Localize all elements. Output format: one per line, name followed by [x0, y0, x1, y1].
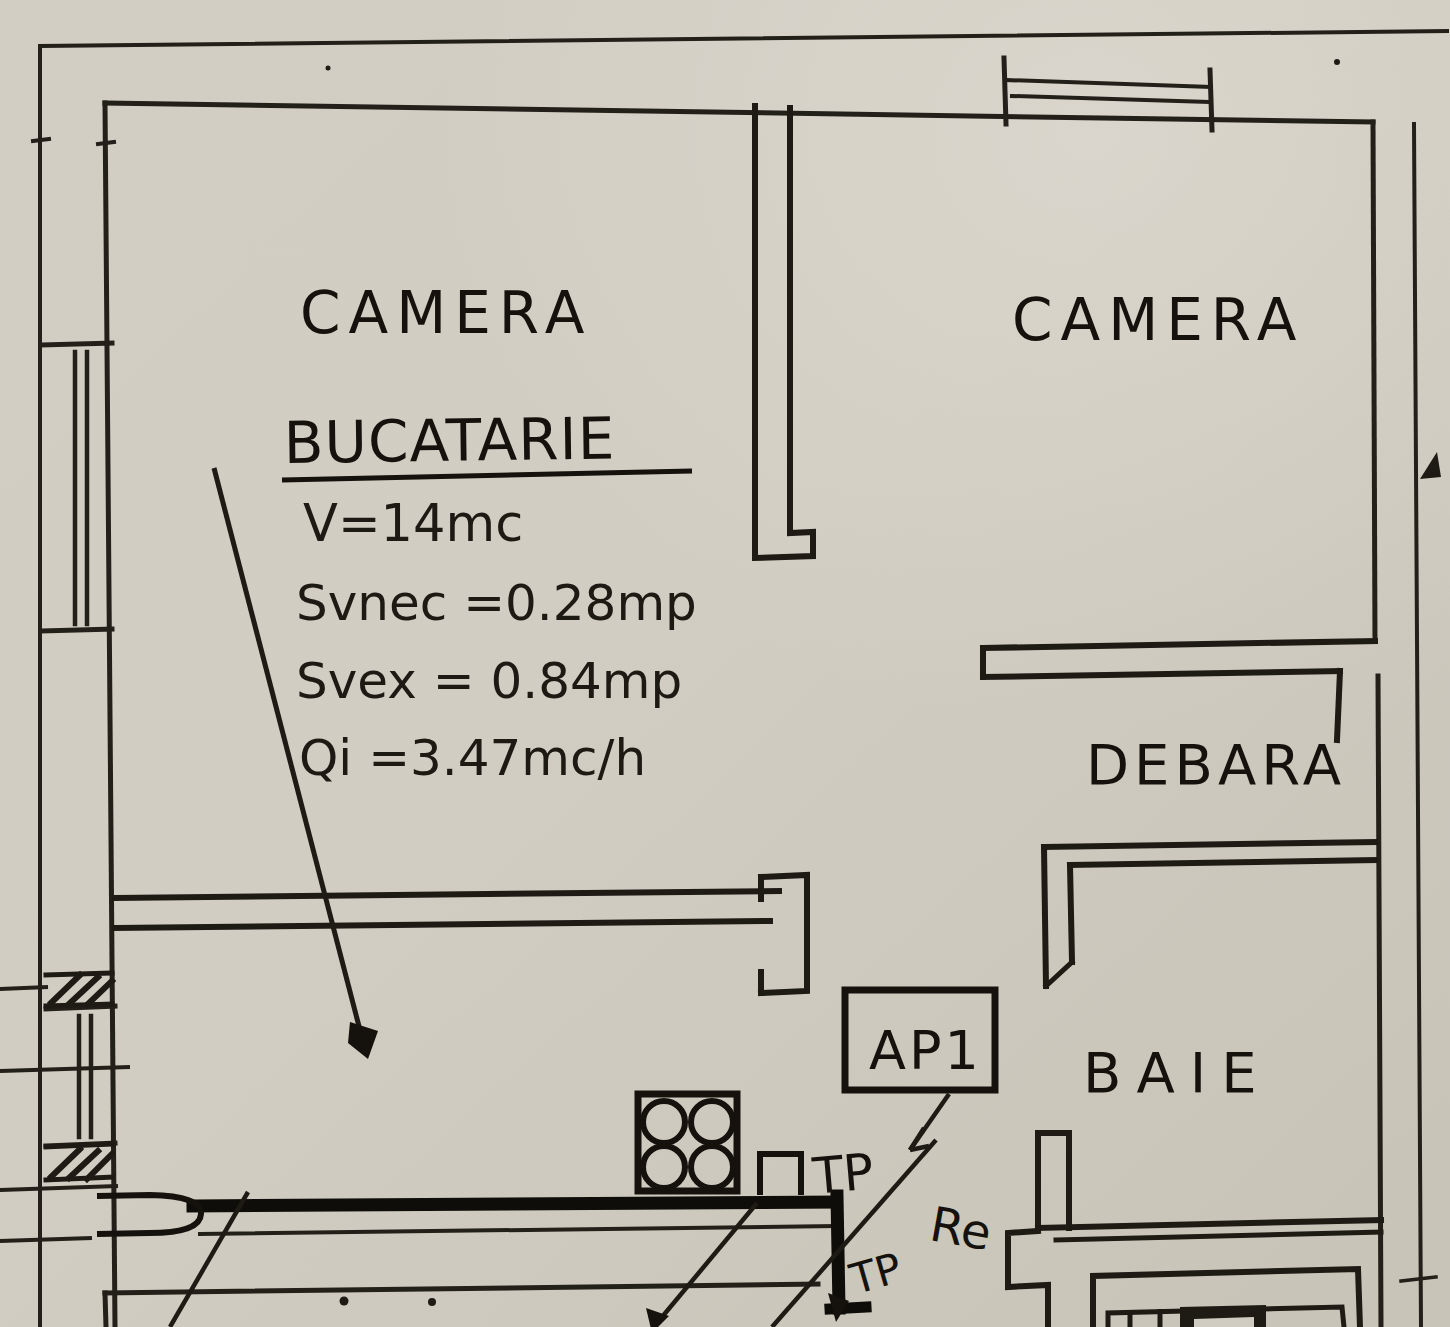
floor-plan-scan: CAMERA CAMERA BUCATARIE V=14mc Svnec =0.… [0, 0, 1450, 1327]
spec-flow: Qi =3.47mc/h [299, 729, 646, 787]
annotation-re: Re [926, 1196, 996, 1262]
annotation-tp-upper: TP [809, 1143, 876, 1206]
room-label-bucatarie: BUCATARIE [283, 404, 615, 477]
apartment-tag-label: AP1 [869, 1019, 982, 1082]
room-label-baie: BAIE [1083, 1040, 1272, 1105]
paper-sheen [0, 0, 1450, 1327]
room-label-debara: DEBARA [1086, 732, 1346, 797]
spec-surface-ex: Svex = 0.84mp [296, 652, 682, 710]
floor-plan-drawing: CAMERA CAMERA BUCATARIE V=14mc Svnec =0.… [0, 0, 1450, 1327]
room-label-camera-right: CAMERA [1012, 286, 1305, 354]
spec-surface-nec: Svnec =0.28mp [296, 574, 697, 632]
spec-volume: V=14mc [303, 494, 523, 553]
room-label-camera-left: CAMERA [300, 279, 593, 347]
